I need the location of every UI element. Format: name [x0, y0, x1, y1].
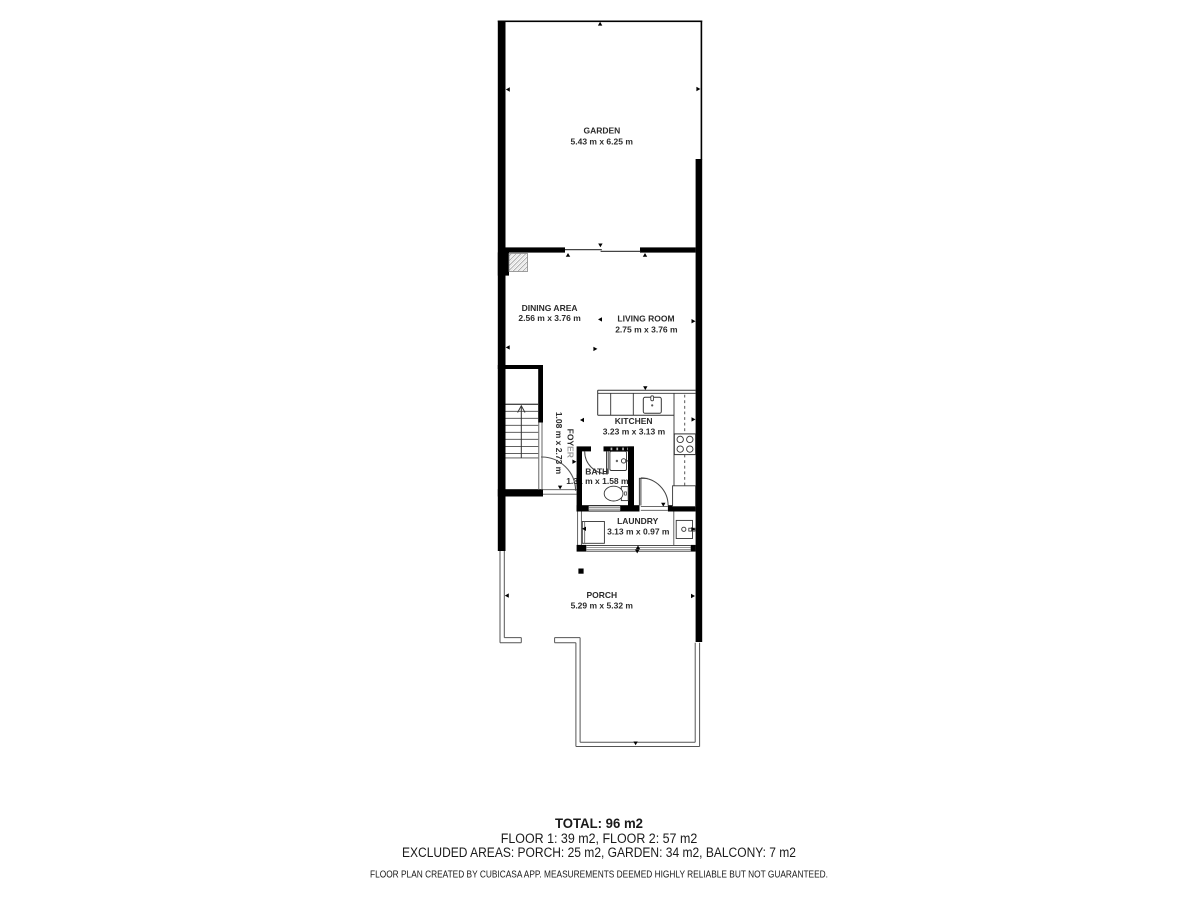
svg-text:1.31 m x 1.58 m: 1.31 m x 1.58 m [566, 476, 629, 486]
svg-text:5.29 m x 5.32 m: 5.29 m x 5.32 m [571, 600, 634, 610]
svg-text:KITCHEN: KITCHEN [615, 416, 653, 426]
svg-text:LIVING ROOM: LIVING ROOM [617, 313, 674, 323]
svg-text:5.43 m x 6.25 m: 5.43 m x 6.25 m [571, 136, 634, 146]
svg-text:2.56 m x 3.76 m: 2.56 m x 3.76 m [518, 313, 581, 323]
svg-text:FLOOR 1: 39 m2, FLOOR 2: 57 m2: FLOOR 1: 39 m2, FLOOR 2: 57 m2 [501, 831, 698, 846]
svg-text:TOTAL: 96 m2: TOTAL: 96 m2 [555, 816, 643, 831]
svg-text:3.23 m x 3.13 m: 3.23 m x 3.13 m [603, 426, 666, 436]
svg-text:1.08 m x 2.73 m: 1.08 m x 2.73 m [554, 412, 564, 475]
svg-text:PORCH: PORCH [586, 590, 617, 600]
svg-text:BATH: BATH [585, 467, 608, 477]
svg-text:3.13 m x 0.97 m: 3.13 m x 0.97 m [607, 526, 670, 536]
svg-text:GARDEN: GARDEN [583, 125, 620, 135]
svg-text:EXCLUDED AREAS: PORCH: 25 m2,: EXCLUDED AREAS: PORCH: 25 m2, GARDEN: 34… [402, 845, 796, 860]
svg-text:2.75 m x 3.76 m: 2.75 m x 3.76 m [615, 324, 678, 334]
svg-text:LAUNDRY: LAUNDRY [617, 516, 659, 526]
svg-text:FLOOR PLAN CREATED BY CUBICASA: FLOOR PLAN CREATED BY CUBICASA APP. MEAS… [370, 869, 828, 880]
svg-text:DINING AREA: DINING AREA [522, 303, 578, 313]
